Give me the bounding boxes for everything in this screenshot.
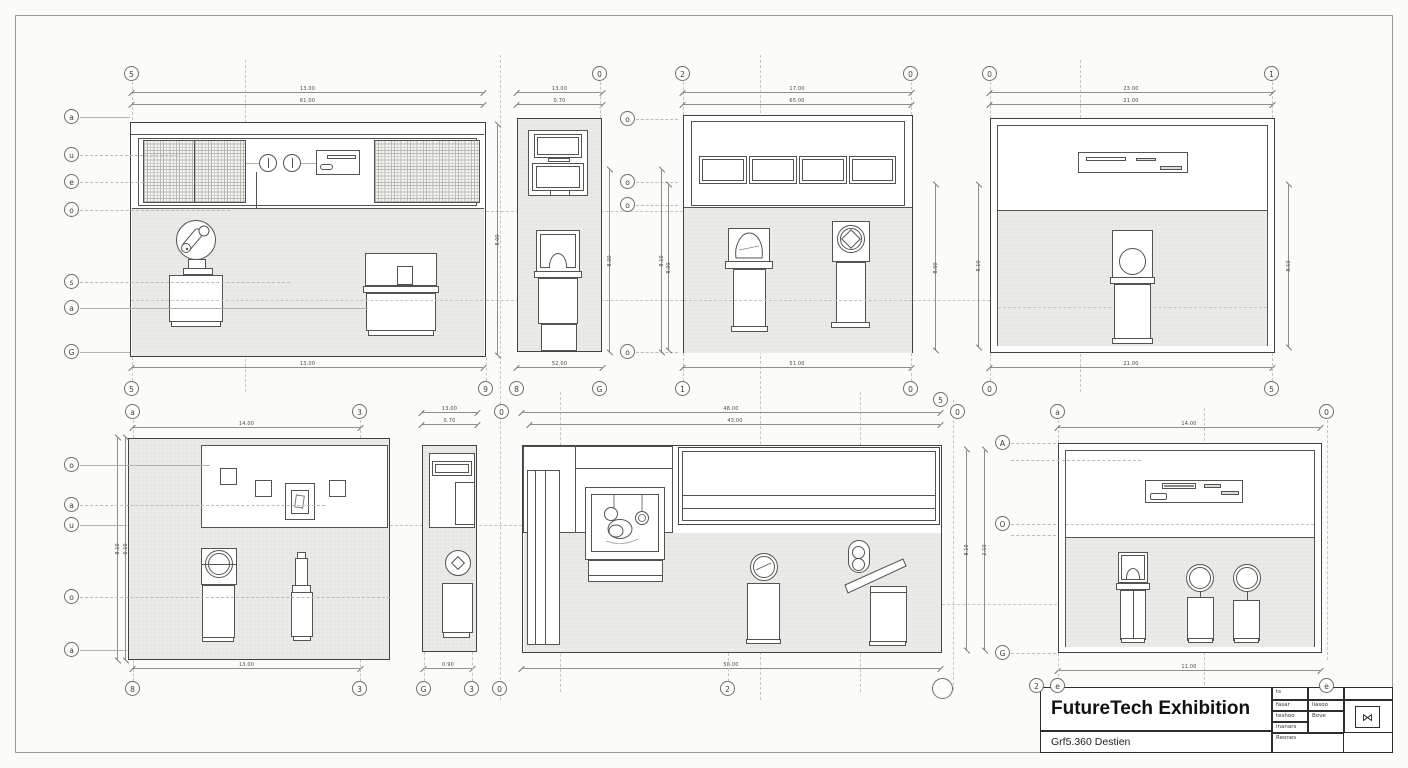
dimension-line: 0.70 <box>517 104 602 105</box>
title-block-cell: Bove <box>1308 711 1344 733</box>
bubble-leader <box>80 525 127 526</box>
light-panel-inner <box>852 159 893 181</box>
sign-bar <box>1204 484 1221 488</box>
cabinet-base <box>1112 338 1153 344</box>
dimension-label: 61.00 <box>300 98 315 104</box>
grid-bubble: 1 <box>675 381 690 396</box>
dimension-label: 8.10 <box>976 260 982 271</box>
grid-bubble: 0 <box>903 381 918 396</box>
exhibit-ring-inner <box>1189 567 1211 589</box>
bubble-leader <box>1011 653 1056 654</box>
dimension-line: 13.00 <box>517 92 602 93</box>
bubble-stem <box>600 82 601 118</box>
pilaster-line <box>545 471 546 644</box>
artwork-icon <box>294 494 305 508</box>
bubble-leader <box>1011 443 1056 444</box>
project-title: FutureTech Exhibition <box>1040 687 1272 731</box>
dimension-label: 13.00 <box>552 86 567 92</box>
pedestal <box>442 583 473 633</box>
pilaster-line <box>535 471 536 644</box>
display-box <box>316 150 360 175</box>
drawing-sheet: 5 13.00 61.00 a u e o s a G 13.00 5 9 8.… <box>0 0 1408 768</box>
grid-bubble: 0 <box>492 681 507 696</box>
monitor-screen <box>536 166 580 188</box>
pedestal <box>733 269 766 327</box>
dimension-line: 14.00 <box>133 427 360 428</box>
dimension-line: 8.10 <box>978 185 979 347</box>
mesh-divider <box>194 140 195 203</box>
robot-arm-icon <box>174 218 220 264</box>
dimension-label: 8.10 <box>1286 260 1292 271</box>
grid-bubble: 5 <box>124 66 139 81</box>
cabinet-base <box>202 637 234 642</box>
title-block-cell: Reones <box>1272 733 1344 753</box>
dimension-line: 61.00 <box>132 104 483 105</box>
grid-bubble: 8 <box>125 681 140 696</box>
dimension-label: 23.00 <box>1123 86 1138 92</box>
exhibit-blob <box>732 230 766 260</box>
monitor-stand <box>550 190 570 196</box>
grid-bubble: a <box>64 300 79 315</box>
dimension-label: 6.10 <box>123 543 129 554</box>
grid-bubble: 0 <box>1319 404 1334 419</box>
dimension-label: 13.00 <box>300 361 315 367</box>
bubble-stem <box>132 357 133 381</box>
bubble-stem <box>133 420 134 438</box>
bubble-stem <box>683 82 684 115</box>
dimension-line: 8.10 <box>117 438 118 660</box>
cabinet <box>836 262 866 323</box>
bubble-leader <box>80 352 130 353</box>
dimension-label: 14.00 <box>1181 421 1196 427</box>
grid-bubble: s <box>64 274 79 289</box>
dimension-line: 8.10 <box>661 170 662 352</box>
dimension-label: 21.00 <box>1123 361 1138 367</box>
title-block-cell: fasar <box>1272 700 1308 711</box>
grid-bubble: o <box>620 197 635 212</box>
dimension-line: 0.90 <box>424 668 472 669</box>
dimension-label: 8.10 <box>659 255 665 266</box>
pedestal-base <box>731 326 768 332</box>
dimension-line: 8.10 <box>1288 185 1289 347</box>
cabinet <box>202 585 235 638</box>
sign-bar <box>1160 166 1182 170</box>
bubble-stem <box>1327 420 1328 660</box>
title-block-cell: teshoo <box>1272 711 1308 722</box>
bubble-stem <box>911 353 912 381</box>
panel-tile <box>329 480 346 497</box>
grid-bubble: e <box>1050 678 1065 693</box>
case-stand <box>588 560 663 582</box>
grid-bubble: 5 <box>124 381 139 396</box>
dimension-line: 13.00 <box>132 92 483 93</box>
dimension-line: 13.00 <box>132 367 483 368</box>
lightbox-inner <box>682 451 936 521</box>
dimension-line: 58.00 <box>522 668 940 669</box>
grid-bubble: 1 <box>1264 66 1279 81</box>
pedestal-base <box>869 641 906 646</box>
bubble-stem <box>911 82 912 115</box>
grid-bubble: G <box>995 645 1010 660</box>
pedestal <box>1187 597 1214 641</box>
exhibit-sphere <box>1119 248 1146 275</box>
grid-line <box>500 55 501 700</box>
dimension-label: 8.00 <box>666 262 672 273</box>
pedestal-base <box>1234 638 1259 643</box>
panel-tile <box>220 468 237 485</box>
mesh-panel <box>374 140 480 203</box>
dimension-line: 48.00 <box>522 412 940 413</box>
dimension-line: 23.00 <box>990 92 1272 93</box>
pedestal-base <box>1188 638 1213 643</box>
grid-bubble: G <box>416 681 431 696</box>
bubble-stem <box>424 652 425 681</box>
dimension-line: 14.00 <box>1058 427 1320 428</box>
light-panel-inner <box>702 159 744 181</box>
bubble-stem <box>1058 420 1059 443</box>
grid-bubble: 2 <box>1029 678 1044 693</box>
case-band <box>725 261 773 269</box>
lightbox-line <box>682 508 936 509</box>
title-block-cell: liasoo <box>1308 700 1344 711</box>
dimension-label: 58.00 <box>723 662 738 668</box>
detail-line <box>301 163 316 164</box>
bubble-stem <box>486 357 487 381</box>
case-band <box>1110 277 1155 284</box>
bubble-leader <box>80 117 130 118</box>
grid-bubble: 9 <box>478 381 493 396</box>
dimension-line: 43.00 <box>530 424 940 425</box>
dimension-line: 8.10 <box>966 450 967 650</box>
pedestal <box>1233 600 1260 641</box>
case-band <box>1116 583 1150 590</box>
grid-bubble: 2 <box>675 66 690 81</box>
grid-bubble: e <box>1319 678 1334 693</box>
bubble-leader <box>80 505 325 506</box>
dimension-line: 21.00 <box>990 104 1272 105</box>
bubble-leader <box>80 210 230 211</box>
dimension-label: 13.00 <box>442 406 457 412</box>
detail-line <box>201 564 237 565</box>
grid-bubble: o <box>620 111 635 126</box>
dimension-label: 48.00 <box>723 406 738 412</box>
centerline <box>684 300 912 301</box>
dimension-label: 8.00 <box>495 234 501 245</box>
grid-bubble: o <box>64 202 79 217</box>
dimension-line: 13.00 <box>133 668 360 669</box>
bubble-leader <box>80 155 178 156</box>
grid-bubble-empty <box>932 678 953 699</box>
dimension-label: 21.00 <box>1123 98 1138 104</box>
dimension-label: 52.00 <box>552 361 567 367</box>
bubble-stem <box>683 353 684 381</box>
grid-bubble: 0 <box>592 66 607 81</box>
dimension-line: 11.00 <box>1058 670 1320 671</box>
title-block-cell: inanars <box>1272 722 1308 733</box>
pedestal-base <box>1121 638 1145 643</box>
cabinet <box>538 278 578 324</box>
grid-bubble: a <box>1050 404 1065 419</box>
grid-bubble: 0 <box>950 404 965 419</box>
dimension-label: 0.70 <box>554 98 566 104</box>
title-block-cell: ts <box>1272 687 1308 700</box>
bubble-leader <box>636 205 678 206</box>
dimension-label: 14.00 <box>239 421 254 427</box>
side-screen <box>455 482 475 525</box>
sign-pill <box>1150 493 1167 500</box>
bubble-leader <box>1011 535 1056 536</box>
bubble-stem <box>990 82 991 118</box>
sign-bar-inner <box>1164 485 1194 487</box>
grid-bubble: 0 <box>494 404 509 419</box>
detail-line <box>292 158 293 168</box>
sign-bar <box>1221 491 1239 495</box>
grid-bubble: u <box>64 517 79 532</box>
bubble-stem <box>990 353 991 381</box>
grid-bubble: O <box>995 516 1010 531</box>
bottle-body <box>291 592 313 637</box>
grid-bubble: 3 <box>464 681 479 696</box>
dimension-label: 2.10 <box>982 544 988 555</box>
bubble-stem <box>1058 653 1059 677</box>
detail-line <box>871 592 906 593</box>
bubble-leader <box>80 282 290 283</box>
pedestal-base <box>746 639 781 644</box>
screen <box>537 137 579 155</box>
dimension-line: 51.00 <box>683 367 911 368</box>
grid-bubble: 2 <box>720 681 735 696</box>
grid-bubble: a <box>125 404 140 419</box>
detail-line <box>246 163 260 164</box>
pilaster <box>527 470 560 645</box>
screen-shelf <box>548 158 570 162</box>
dimension-label: 17.00 <box>789 86 804 92</box>
cabinet-base <box>541 324 577 351</box>
case-band <box>363 286 439 293</box>
detail-line <box>268 158 269 168</box>
detail-line <box>256 172 257 208</box>
bubble-stem <box>472 652 473 681</box>
case-band <box>534 271 582 278</box>
display-slot <box>327 155 356 159</box>
bubble-stem <box>133 660 134 681</box>
bubble-leader <box>80 650 127 651</box>
dimension-label: 8.00 <box>607 255 613 266</box>
grid-bubble: G <box>64 344 79 359</box>
grid-bubble: 0 <box>982 381 997 396</box>
dimension-line: 8.00 <box>668 185 669 350</box>
bubble-stem <box>1272 82 1273 118</box>
pedestal-base <box>171 321 221 327</box>
light-panel-inner <box>752 159 794 181</box>
grid-bubble: 0 <box>903 66 918 81</box>
bubble-leader <box>1011 524 1056 525</box>
sign-bar <box>1136 158 1156 161</box>
bottle-neck <box>295 558 308 586</box>
dimension-label: 8.10 <box>115 543 121 554</box>
bubble-stem <box>1272 353 1273 381</box>
bottle-base <box>293 636 311 641</box>
grid-bubble: 3 <box>352 404 367 419</box>
dimension-line: 8.00 <box>935 185 936 350</box>
dimension-label: 0.90 <box>442 662 454 668</box>
bubble-leader <box>80 597 390 598</box>
dimension-line: 2.10 <box>984 450 985 650</box>
panel-tile <box>255 480 272 497</box>
fascia-line <box>131 134 484 135</box>
grid-bubble: o <box>64 589 79 604</box>
dimension-line: 21.00 <box>990 367 1272 368</box>
grid-bubble: 5 <box>1264 381 1279 396</box>
grid-bubble: a <box>64 642 79 657</box>
grid-bubble: a <box>64 497 79 512</box>
bubble-leader <box>636 119 678 120</box>
header-bar-inner <box>435 464 469 473</box>
pedestal <box>747 583 780 640</box>
dimension-line: 13.00 <box>422 412 477 413</box>
bubble-leader <box>80 308 368 309</box>
sign-bar <box>1086 157 1126 161</box>
dimension-line: 8.00 <box>609 170 610 352</box>
grid-line <box>953 400 954 690</box>
lightbox-line <box>682 495 936 496</box>
grid-bubble: 0 <box>982 66 997 81</box>
grid-bubble: o <box>64 457 79 472</box>
dimension-label: 13.00 <box>300 86 315 92</box>
bubble-leader <box>636 182 678 183</box>
bubble-stem <box>360 660 361 681</box>
dimension-line: 8.00 <box>497 125 498 355</box>
dimension-label: 8.10 <box>964 544 970 555</box>
centerline <box>131 300 483 301</box>
grid-bubble: o <box>620 344 635 359</box>
display-pill <box>320 164 333 170</box>
bubble-stem <box>728 653 729 681</box>
cabinet <box>1114 284 1151 339</box>
dimension-label: 51.00 <box>789 361 804 367</box>
dimension-label: 43.00 <box>727 418 742 424</box>
pedestal-base <box>443 632 470 638</box>
dimension-label: 0.70 <box>444 418 456 424</box>
dimension-label: 8.00 <box>933 262 939 273</box>
exhibit-cube <box>397 266 413 285</box>
pedestal <box>870 586 907 643</box>
grid-bubble: 3 <box>352 681 367 696</box>
dimension-label: 13.00 <box>239 662 254 668</box>
light-panel-inner <box>802 159 844 181</box>
cabinet <box>366 293 436 331</box>
grid-bubble: 8 <box>509 381 524 396</box>
grid-bubble: A <box>995 435 1010 450</box>
cabinet-base <box>831 322 870 328</box>
grid-bubble: 5 <box>933 392 948 407</box>
header-line <box>575 468 672 469</box>
ring-stem <box>1247 592 1248 600</box>
dimension-line: 17.00 <box>683 92 911 93</box>
centerline <box>1066 524 1314 525</box>
grid-bubble: a <box>64 109 79 124</box>
stamp-icon: ⋈ <box>1355 706 1380 728</box>
dimension-line: 52.00 <box>517 367 602 368</box>
dimension-line: 65.00 <box>683 104 911 105</box>
bubble-leader <box>80 182 240 183</box>
ring-detail <box>753 556 775 578</box>
detail-line <box>1133 591 1134 639</box>
grid-bubble: u <box>64 147 79 162</box>
dimension-line: 0.70 <box>422 424 477 425</box>
detail-line <box>589 575 662 576</box>
wall-panel <box>684 207 912 353</box>
exhibit-plate <box>183 268 213 275</box>
dimension-line: 6.10 <box>125 438 126 660</box>
bubble-leader <box>80 465 210 466</box>
header-divider <box>575 446 576 533</box>
exhibit-ring-inner <box>1236 567 1258 589</box>
project-subtitle: Grf5.360 Destien <box>1040 731 1272 753</box>
cabinet-base <box>368 330 434 336</box>
dimension-label: 65.00 <box>789 98 804 104</box>
dimension-label: 11.00 <box>1181 664 1196 670</box>
hanging-exhibits <box>592 495 658 551</box>
grid-bubble: e <box>64 174 79 189</box>
grid-bubble: G <box>592 381 607 396</box>
title-block-cell <box>1344 687 1393 700</box>
grid-line <box>942 604 1057 605</box>
grid-bubble: o <box>620 174 635 189</box>
bubble-leader <box>1011 460 1141 461</box>
